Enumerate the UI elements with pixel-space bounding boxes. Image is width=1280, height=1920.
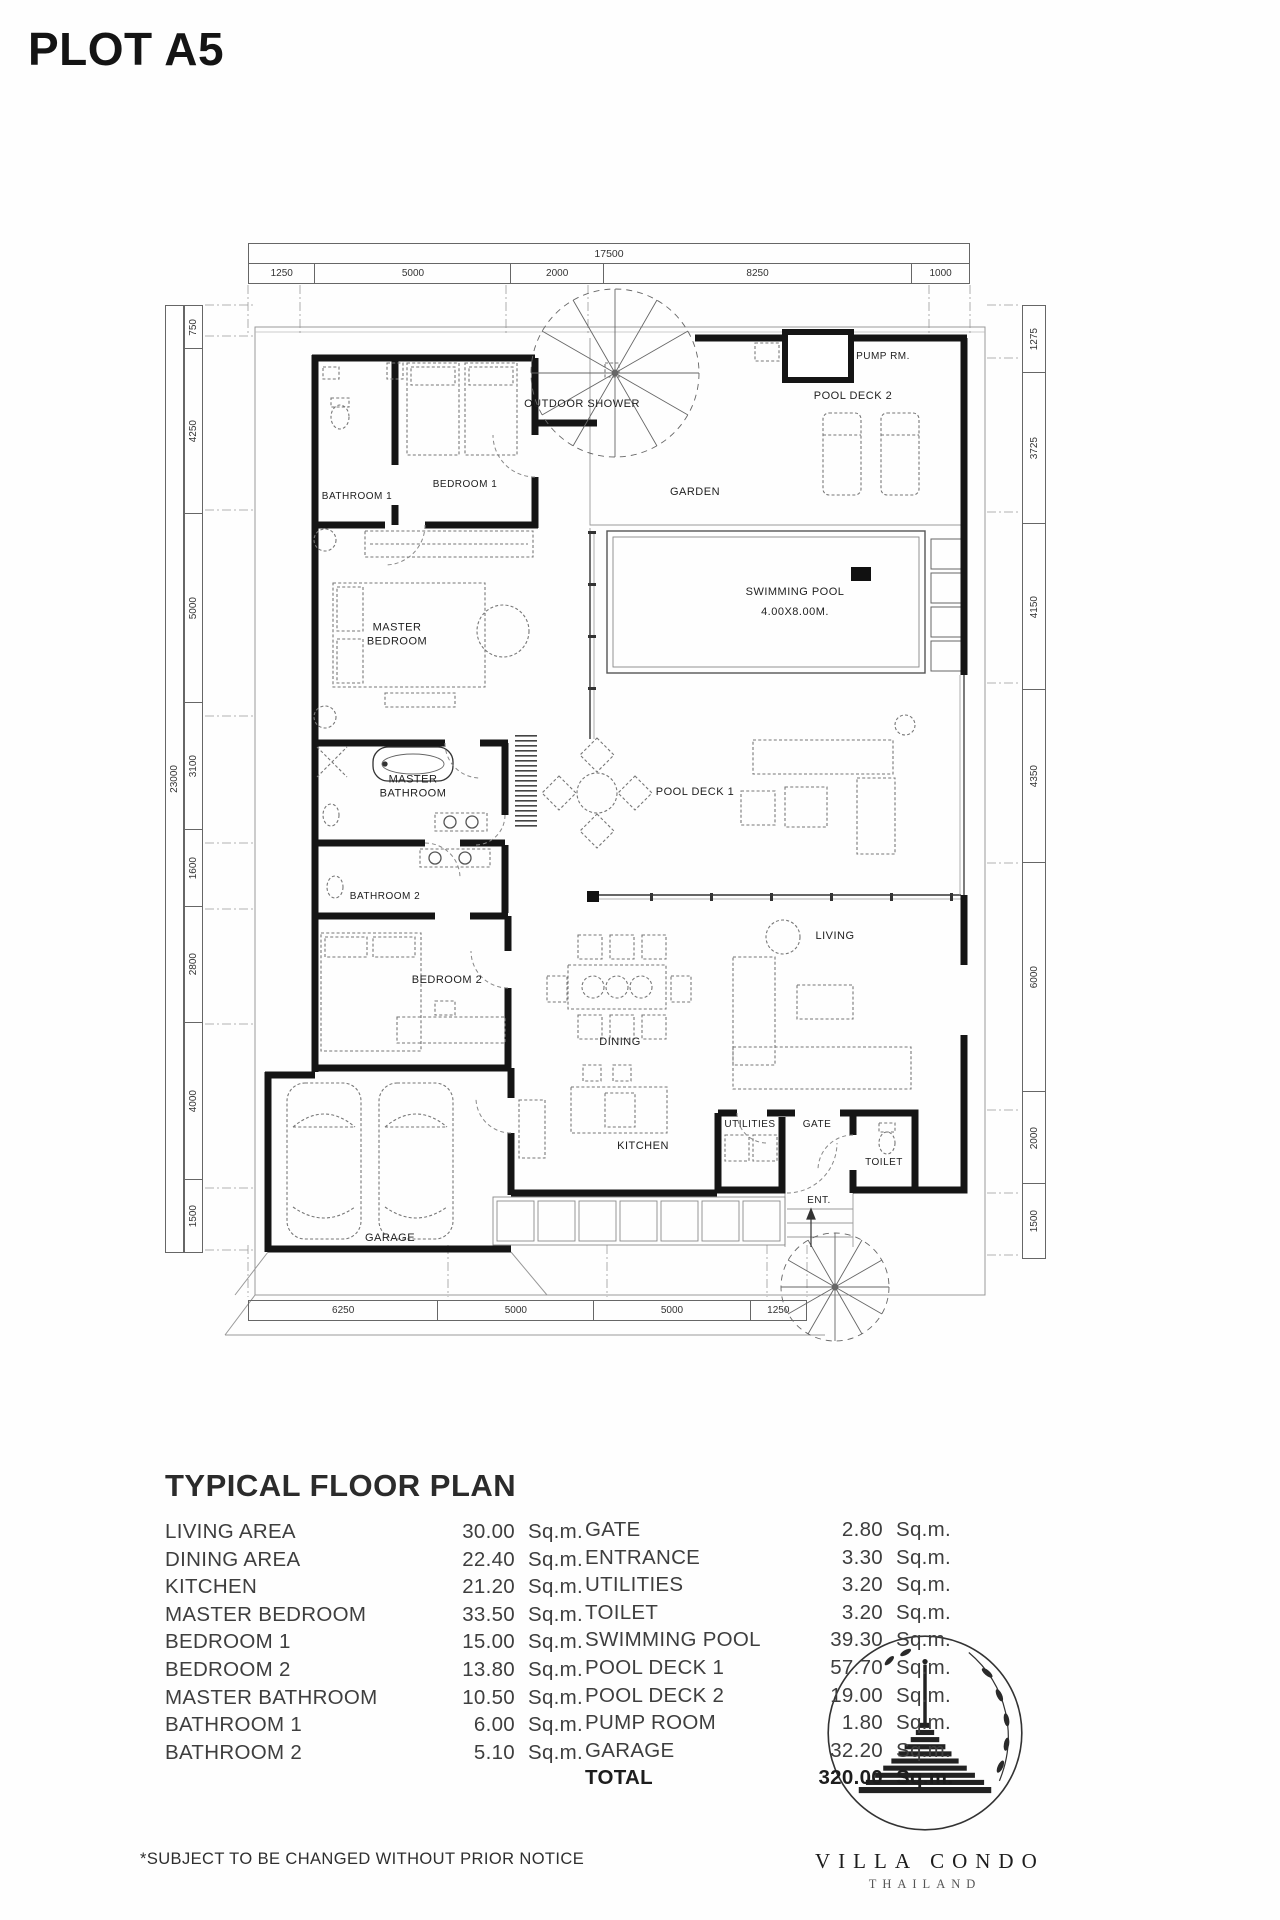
area-row: ENTRANCE3.30Sq.m. bbox=[585, 1546, 953, 1574]
dimension-extension-lines bbox=[205, 285, 1021, 1297]
area-row-unit: Sq.m. bbox=[528, 1658, 583, 1682]
room-label-pump-room: PUMP RM. bbox=[856, 351, 910, 364]
area-row-value: 21.20 bbox=[423, 1575, 515, 1599]
dim-cell: 2800 bbox=[185, 907, 202, 1024]
dim-top-segments: 12505000200082501000 bbox=[248, 264, 970, 284]
entrance-tree-icon bbox=[781, 1233, 889, 1341]
room-label-master-bathroom: MASTER BATHROOM bbox=[373, 773, 453, 801]
dim-right-segments: 1275372541504350600020001500 bbox=[1022, 305, 1046, 1259]
dim-cell: 4350 bbox=[1023, 690, 1045, 863]
dim-cell: 5000 bbox=[594, 1301, 750, 1320]
area-row-value: 57.70 bbox=[785, 1656, 883, 1680]
brand-country: THAILAND bbox=[815, 1877, 1035, 1892]
area-table-left: LIVING AREA30.00Sq.m.DINING AREA22.40Sq.… bbox=[165, 1520, 583, 1768]
area-row-unit: Sq.m. bbox=[896, 1766, 953, 1790]
area-row-value: 30.00 bbox=[423, 1520, 515, 1544]
area-row: POOL DECK 219.00Sq.m. bbox=[585, 1684, 953, 1712]
area-row: BEDROOM 213.80Sq.m. bbox=[165, 1658, 583, 1686]
area-row-value: 10.50 bbox=[423, 1686, 515, 1710]
dim-bar-bottom: 6250500050001250 bbox=[248, 1300, 807, 1321]
dim-cell: 6000 bbox=[1023, 863, 1045, 1092]
dim-cell: 5000 bbox=[315, 264, 511, 283]
area-row-value: 3.20 bbox=[785, 1601, 883, 1625]
area-row-value: 320.00 bbox=[785, 1766, 883, 1790]
area-row-value: 5.10 bbox=[423, 1741, 515, 1765]
dim-cell: 2000 bbox=[511, 264, 603, 283]
area-row-label: SWIMMING POOL bbox=[585, 1628, 785, 1652]
room-label-swimming-pool: SWIMMING POOL bbox=[746, 586, 845, 600]
pool-size-label: 4.00X8.00M. bbox=[761, 606, 829, 620]
area-row-unit: Sq.m. bbox=[528, 1575, 583, 1599]
area-row: DINING AREA22.40Sq.m. bbox=[165, 1548, 583, 1576]
room-label-gate: GATE bbox=[803, 1119, 831, 1132]
area-row: MASTER BEDROOM33.50Sq.m. bbox=[165, 1603, 583, 1631]
area-row: TOTAL320.00Sq.m. bbox=[585, 1766, 953, 1794]
area-row-label: ENTRANCE bbox=[585, 1546, 785, 1570]
walls bbox=[265, 338, 967, 1252]
room-label-bedroom1: BEDROOM 1 bbox=[433, 479, 498, 492]
area-row-value: 33.50 bbox=[423, 1603, 515, 1627]
area-row-label: UTILITIES bbox=[585, 1573, 785, 1597]
area-row-unit: Sq.m. bbox=[896, 1601, 951, 1625]
dim-cell: 4000 bbox=[185, 1023, 202, 1180]
area-row: GATE2.80Sq.m. bbox=[585, 1518, 953, 1546]
room-label-master-bedroom: MASTER BEDROOM bbox=[357, 621, 437, 649]
area-row-label: TOTAL bbox=[585, 1766, 785, 1790]
area-row-unit: Sq.m. bbox=[528, 1741, 583, 1765]
area-row-value: 1.80 bbox=[785, 1711, 883, 1735]
area-row: TOILET3.20Sq.m. bbox=[585, 1601, 953, 1629]
dim-cell: 5000 bbox=[185, 514, 202, 704]
area-row-value: 13.80 bbox=[423, 1658, 515, 1682]
dim-cell: 750 bbox=[185, 306, 202, 349]
area-row-unit: Sq.m. bbox=[528, 1548, 583, 1572]
terrace-deck bbox=[493, 1197, 785, 1245]
area-row-unit: Sq.m. bbox=[896, 1546, 951, 1570]
area-row-label: MASTER BEDROOM bbox=[165, 1603, 423, 1627]
area-row-unit: Sq.m. bbox=[896, 1628, 951, 1652]
page-title: PLOT A5 bbox=[28, 22, 224, 76]
area-row-label: BEDROOM 2 bbox=[165, 1658, 423, 1682]
dim-bottom-segments: 6250500050001250 bbox=[248, 1300, 807, 1321]
area-row-label: POOL DECK 1 bbox=[585, 1656, 785, 1680]
area-row: LIVING AREA30.00Sq.m. bbox=[165, 1520, 583, 1548]
swimming-pool-shape bbox=[607, 531, 961, 673]
area-row: GARAGE32.20Sq.m. bbox=[585, 1739, 953, 1767]
area-row-label: POOL DECK 2 bbox=[585, 1684, 785, 1708]
dim-left-segments: 7504250500031001600280040001500 bbox=[184, 305, 203, 1253]
area-row-value: 19.00 bbox=[785, 1684, 883, 1708]
room-label-toilet: TOILET bbox=[865, 1157, 903, 1170]
area-row: BATHROOM 25.10Sq.m. bbox=[165, 1741, 583, 1769]
dim-cell: 4150 bbox=[1023, 524, 1045, 690]
area-row-unit: Sq.m. bbox=[528, 1520, 583, 1544]
area-row-unit: Sq.m. bbox=[528, 1630, 583, 1654]
summary-heading: TYPICAL FLOOR PLAN bbox=[165, 1468, 516, 1504]
area-row-value: 32.20 bbox=[785, 1739, 883, 1763]
area-row-unit: Sq.m. bbox=[896, 1573, 951, 1597]
room-label-garden: GARDEN bbox=[670, 486, 720, 500]
area-row: BATHROOM 16.00Sq.m. bbox=[165, 1713, 583, 1741]
dim-cell: 2000 bbox=[1023, 1092, 1045, 1184]
dim-cell: 3725 bbox=[1023, 373, 1045, 524]
dim-cell: 1000 bbox=[912, 264, 969, 283]
dim-cell: 6250 bbox=[249, 1301, 438, 1320]
room-label-bathroom2: BATHROOM 2 bbox=[350, 891, 420, 904]
room-label-living: LIVING bbox=[815, 930, 854, 944]
area-row-label: LIVING AREA bbox=[165, 1520, 423, 1544]
area-row-label: KITCHEN bbox=[165, 1575, 423, 1599]
area-row: UTILITIES3.20Sq.m. bbox=[585, 1573, 953, 1601]
room-label-pool-deck2: POOL DECK 2 bbox=[814, 390, 892, 404]
brand-name: VILLA CONDO bbox=[815, 1849, 1035, 1874]
door-swings bbox=[385, 435, 853, 1193]
room-label-outdoor-shower: OUTDOOR SHOWER bbox=[524, 398, 640, 412]
area-row: KITCHEN21.20Sq.m. bbox=[165, 1575, 583, 1603]
area-row: SWIMMING POOL39.30Sq.m. bbox=[585, 1628, 953, 1656]
area-row-label: BATHROOM 1 bbox=[165, 1713, 423, 1737]
area-row-unit: Sq.m. bbox=[528, 1603, 583, 1627]
area-row-unit: Sq.m. bbox=[896, 1684, 951, 1708]
column-pier bbox=[851, 567, 871, 581]
dim-cell: 3100 bbox=[185, 703, 202, 830]
dim-cell: 8250 bbox=[604, 264, 912, 283]
room-label-dining: DINING bbox=[599, 1036, 641, 1050]
entry-niche bbox=[785, 332, 851, 380]
area-row-value: 3.30 bbox=[785, 1546, 883, 1570]
floor-plan: BATHROOM 1 BEDROOM 1 OUTDOOR SHOWER GARD… bbox=[135, 195, 1075, 1360]
area-row-value: 39.30 bbox=[785, 1628, 883, 1652]
room-label-pool-deck1: POOL DECK 1 bbox=[656, 786, 734, 800]
area-row-label: BATHROOM 2 bbox=[165, 1741, 423, 1765]
property-boundary bbox=[225, 327, 985, 1335]
area-row-unit: Sq.m. bbox=[896, 1518, 951, 1542]
area-row-unit: Sq.m. bbox=[896, 1739, 951, 1763]
area-row: POOL DECK 157.70Sq.m. bbox=[585, 1656, 953, 1684]
area-row-label: DINING AREA bbox=[165, 1548, 423, 1572]
room-label-utilities: UTILITIES bbox=[724, 1119, 775, 1132]
area-row-value: 2.80 bbox=[785, 1518, 883, 1542]
area-row-label: PUMP ROOM bbox=[585, 1711, 785, 1735]
area-row-label: BEDROOM 1 bbox=[165, 1630, 423, 1654]
dim-top-total: 17500 bbox=[248, 243, 970, 264]
room-label-garage: GARAGE bbox=[365, 1232, 415, 1246]
footnote: *SUBJECT TO BE CHANGED WITHOUT PRIOR NOT… bbox=[140, 1850, 584, 1869]
dim-cell: 1275 bbox=[1023, 306, 1045, 373]
area-row-value: 6.00 bbox=[423, 1713, 515, 1737]
garden-tree-icon bbox=[531, 289, 699, 457]
dim-cell: 1500 bbox=[185, 1180, 202, 1252]
area-row-unit: Sq.m. bbox=[896, 1656, 951, 1680]
area-row-unit: Sq.m. bbox=[528, 1713, 583, 1737]
area-row: BEDROOM 115.00Sq.m. bbox=[165, 1630, 583, 1658]
room-label-bedroom2: BEDROOM 2 bbox=[412, 974, 483, 988]
area-row-unit: Sq.m. bbox=[528, 1686, 583, 1710]
area-row-label: MASTER BATHROOM bbox=[165, 1686, 423, 1710]
area-row: PUMP ROOM1.80Sq.m. bbox=[585, 1711, 953, 1739]
area-row-label: GATE bbox=[585, 1518, 785, 1542]
room-label-kitchen: KITCHEN bbox=[617, 1140, 669, 1154]
area-row-value: 15.00 bbox=[423, 1630, 515, 1654]
area-table-right: GATE2.80Sq.m.ENTRANCE3.30Sq.m.UTILITIES3… bbox=[585, 1518, 953, 1794]
dim-cell: 4250 bbox=[185, 349, 202, 514]
area-row-label: TOILET bbox=[585, 1601, 785, 1625]
dim-cell: 1600 bbox=[185, 830, 202, 907]
area-row-value: 22.40 bbox=[423, 1548, 515, 1572]
column-pier-2 bbox=[587, 891, 599, 902]
dim-left-total: 23000 bbox=[165, 305, 184, 1253]
room-label-bathroom1: BATHROOM 1 bbox=[322, 491, 392, 504]
area-row-label: GARAGE bbox=[585, 1739, 785, 1763]
area-row-unit: Sq.m. bbox=[896, 1711, 951, 1735]
dim-cell: 1500 bbox=[1023, 1184, 1045, 1258]
dim-bar-top: 17500 12505000200082501000 bbox=[248, 243, 970, 284]
dim-bar-left: 23000 7504250500031001600280040001500 bbox=[165, 305, 203, 1253]
area-row: MASTER BATHROOM10.50Sq.m. bbox=[165, 1686, 583, 1714]
dim-cell: 5000 bbox=[438, 1301, 594, 1320]
room-label-entrance: ENT. bbox=[807, 1195, 831, 1208]
floor-plan-drawing bbox=[135, 195, 1075, 1360]
dim-bar-right: 1275372541504350600020001500 bbox=[1022, 305, 1046, 1257]
entrance-arrow-icon bbox=[807, 1209, 815, 1247]
dim-cell: 1250 bbox=[249, 264, 315, 283]
area-row-value: 3.20 bbox=[785, 1573, 883, 1597]
dim-cell: 1250 bbox=[751, 1301, 806, 1320]
